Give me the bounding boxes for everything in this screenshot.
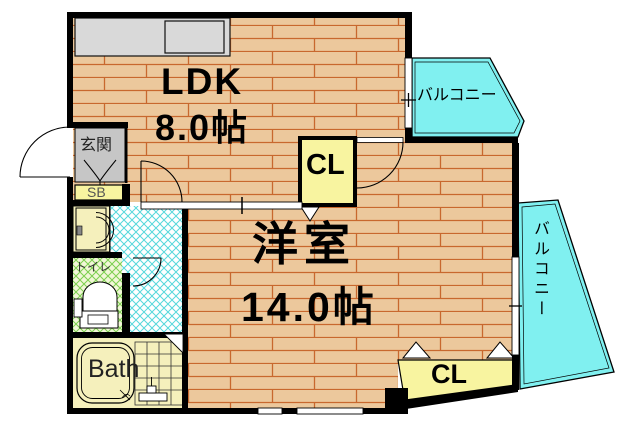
door-opening-western: [357, 138, 403, 143]
wall-corridor-right: [182, 202, 188, 414]
ldk-label: LDK: [161, 63, 243, 100]
closet-upper-label: CL: [306, 151, 345, 180]
balcony-right-label: バルコニー: [531, 220, 547, 320]
floor-plan: LDK 8.0帖 洋室 14.0帖 CL CL バルコニー バルコニー 玄関 S…: [0, 0, 627, 425]
kitchen-sink: [165, 21, 224, 53]
shoe-box-label: SB: [87, 185, 106, 199]
balcony-top-label: バルコニー: [417, 88, 497, 104]
window-bottom-small: [258, 408, 282, 414]
wall-ldk-right-upper: [405, 12, 412, 58]
wall-entrance-top: [67, 122, 128, 128]
wall-left-lower: [67, 177, 73, 414]
wall-western-right-upper: [512, 143, 519, 257]
wall-horizontal-right: [405, 137, 518, 143]
entrance-door-arc: [20, 127, 70, 177]
entrance-label: 玄関: [80, 138, 112, 154]
ldk-area-label: 8.0帖: [155, 110, 249, 146]
wall-shoebox-right: [122, 184, 130, 206]
wall-entrance-right: [125, 128, 128, 183]
western-room-area-label: 14.0帖: [241, 287, 377, 328]
bath-label: Bath: [88, 357, 139, 382]
wall-toilet-right: [122, 273, 130, 332]
western-room-label: 洋室: [252, 221, 356, 267]
sliding-partition: [141, 202, 302, 209]
window-bottom-large: [297, 408, 363, 414]
wall-washroom-toilet: [67, 252, 122, 258]
wall-bottom-left: [67, 408, 187, 414]
wall-top: [67, 12, 412, 18]
wall-left-upper: [67, 12, 73, 128]
closet-lower-label: CL: [431, 361, 467, 388]
toilet-label: トイレ: [75, 261, 111, 273]
wall-entrance-bottom: [67, 200, 130, 206]
